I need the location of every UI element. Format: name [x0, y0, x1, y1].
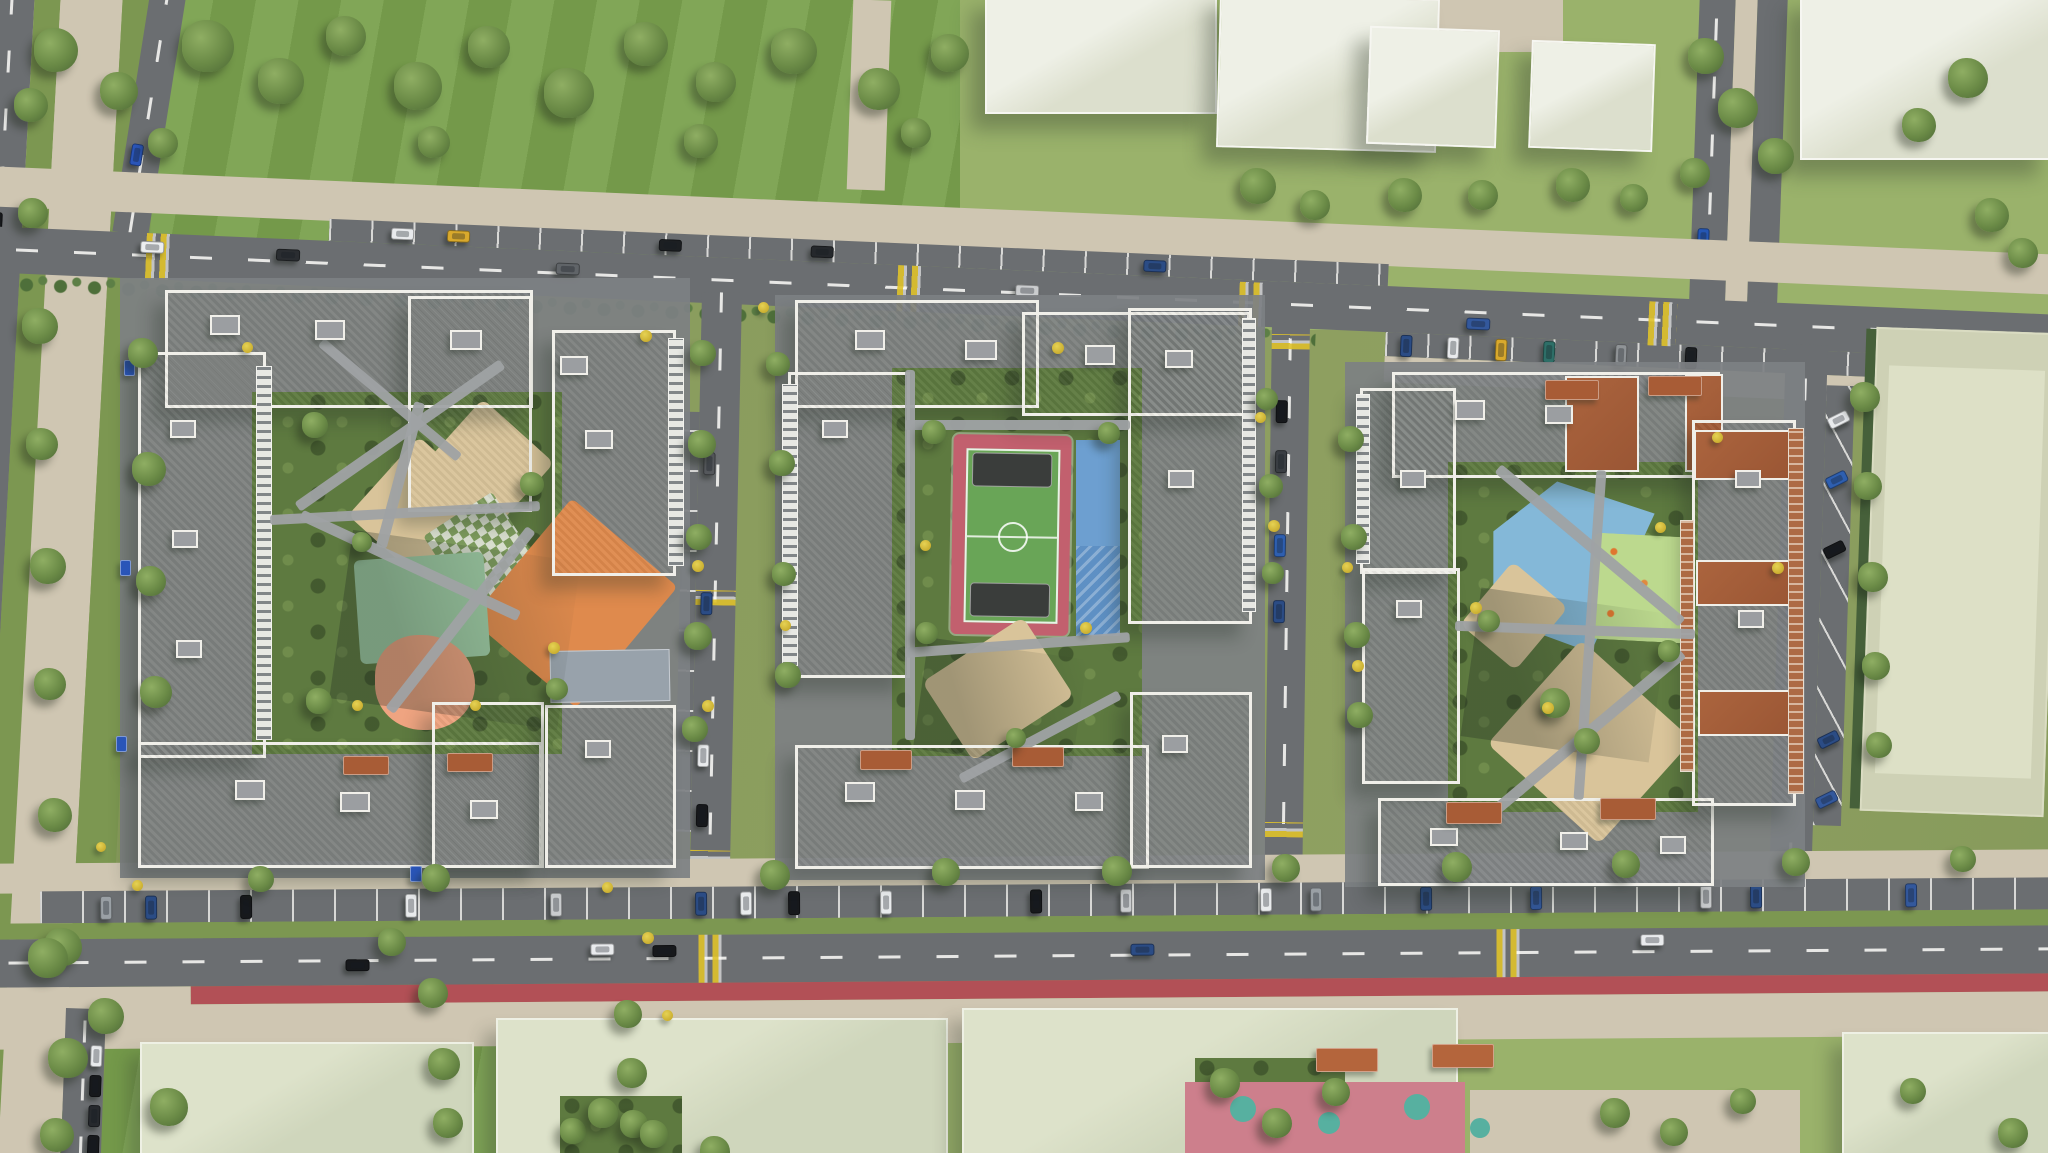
sage-building-1: [140, 1042, 474, 1153]
v0b-cars: [61, 1008, 112, 1153]
parked-car: [276, 249, 300, 262]
parked-car: [89, 1075, 102, 1097]
west-roof-ne-tower: [408, 296, 532, 512]
east-roof-bottom-wing: [1378, 798, 1714, 886]
parked-car: [880, 890, 892, 914]
parked-car: [1400, 335, 1413, 357]
parked-car: [1700, 885, 1712, 909]
parked-car: [1495, 339, 1508, 361]
parked-car: [1640, 934, 1664, 946]
parked-car: [697, 744, 709, 767]
east-roof-top-terracotta: [1565, 376, 1639, 472]
parked-car: [1750, 884, 1762, 908]
west-roof-se-corner: [545, 705, 676, 868]
parked-car: [1543, 341, 1556, 363]
west-east-tower-facade: [668, 338, 684, 566]
parked-car: [1274, 534, 1286, 557]
parked-car: [1310, 887, 1322, 911]
parked-car: [88, 1105, 101, 1127]
sports-court: [950, 434, 1071, 636]
west-roof-east-tower: [552, 330, 676, 576]
v2-cars: [689, 292, 760, 893]
parked-car: [550, 893, 562, 917]
parked-car: [652, 945, 676, 957]
parked-car: [447, 230, 470, 243]
east-right-terracotta-3: [1698, 690, 1796, 736]
parked-car: [90, 1045, 103, 1067]
pink-playground: [1185, 1082, 1465, 1153]
parked-car: [391, 227, 414, 240]
central-roof-right-wing: [1128, 308, 1252, 624]
parked-car: [1030, 889, 1042, 913]
parked-car: [1276, 400, 1288, 423]
west-left-wing-inner-facade: [256, 366, 272, 740]
central-fitness-zone: [1076, 440, 1120, 636]
central-roof-left-wing: [788, 372, 910, 678]
central-roof-se-tower: [1130, 692, 1252, 868]
parked-car: [788, 891, 800, 915]
parked-car: [1905, 883, 1917, 907]
east-right-terracotta-1: [1694, 430, 1792, 480]
parked-car: [659, 239, 682, 252]
v3-cars: [1264, 322, 1312, 883]
parked-car: [1447, 337, 1460, 359]
east-roof-nw-tower: [1360, 388, 1456, 574]
east-nw-facade: [1356, 394, 1370, 564]
west-roof-left-wing: [138, 352, 266, 758]
central-left-wing-facade: [782, 384, 798, 666]
east-roof-left-wing: [1362, 568, 1460, 784]
parked-car: [1260, 888, 1272, 912]
street-v2: [689, 292, 760, 893]
parked-car: [695, 892, 707, 916]
parked-car: [405, 894, 417, 918]
east-right-terracotta-2: [1696, 560, 1794, 606]
parked-car: [555, 263, 579, 276]
open-field: [1860, 327, 2048, 817]
parked-car: [1466, 318, 1490, 331]
parked-car: [1120, 889, 1132, 913]
public-building-4: [1528, 40, 1656, 152]
park-path: [847, 0, 892, 191]
field-inner: [1875, 365, 2045, 778]
public-building-3: [1366, 26, 1500, 148]
west-roof-se-tower: [432, 702, 544, 868]
parked-car: [1530, 886, 1542, 910]
parked-car: [1143, 260, 1166, 273]
bottom-right-plaza: [1470, 1090, 1800, 1153]
parked-car: [140, 241, 164, 254]
street-v0b: [61, 1008, 112, 1153]
parked-car: [87, 1135, 100, 1153]
parked-car: [1822, 539, 1847, 559]
parked-car: [590, 943, 614, 955]
public-building-5: [1800, 0, 2048, 160]
parked-car: [345, 959, 369, 971]
parked-car: [703, 452, 715, 475]
east-inner-facade: [1680, 520, 1694, 772]
aerial-scene: [0, 0, 2048, 1153]
public-building-1: [985, 0, 1217, 114]
central-right-wing-facade: [1242, 318, 1256, 612]
parked-car: [1273, 600, 1285, 623]
parked-car: [1824, 469, 1849, 489]
parked-car: [810, 245, 833, 258]
east-right-facade: [1788, 428, 1804, 794]
sports-court-end-south: [970, 582, 1051, 617]
sports-court-end-north: [972, 452, 1053, 487]
east-green-playground: [1589, 533, 1690, 644]
parked-car: [1816, 729, 1841, 749]
parked-car: [1814, 789, 1839, 809]
parked-car: [1130, 944, 1154, 956]
parked-car: [740, 891, 752, 915]
parked-car: [100, 896, 112, 920]
street-v3: [1264, 322, 1312, 883]
central-roof-bottom-wing: [795, 745, 1149, 869]
parked-car: [145, 896, 157, 920]
parked-car: [1420, 887, 1432, 911]
fitness-zone-striped: [1076, 546, 1120, 636]
sage-court-2: [560, 1096, 682, 1153]
parked-car: [696, 804, 708, 827]
parked-car: [700, 592, 712, 615]
sage-building-4: [1842, 1032, 2048, 1153]
parked-car: [240, 895, 252, 919]
parked-car: [1275, 450, 1287, 473]
west-paved-patch: [550, 649, 671, 703]
parked-car: [1826, 409, 1851, 429]
parked-car: [129, 143, 144, 167]
